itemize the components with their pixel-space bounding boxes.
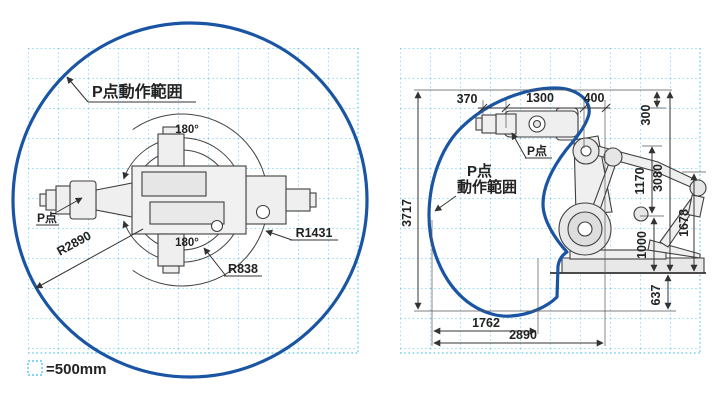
side-view-diagram: 370 1300 400 3717 300 1170 3080 1678 100… <box>400 48 706 353</box>
dim-3717-label: 3717 <box>400 199 414 227</box>
dim-370-label: 370 <box>457 92 478 106</box>
range-label: P点動作範囲 <box>92 82 183 101</box>
figure-svg: P点動作範囲 180° 180° R2890 R838 R1431 P点 <box>0 0 721 404</box>
dim-2890-label: 2890 <box>509 328 537 342</box>
dim-3080-label: 3080 <box>651 164 665 192</box>
dim-400-label: 400 <box>584 91 605 105</box>
dim-1762-label: 1762 <box>472 316 500 330</box>
scale-legend: =500mm <box>28 361 106 378</box>
r1431-label: R1431 <box>296 226 333 240</box>
dim-1000-label: 1000 <box>635 231 649 259</box>
legend-grid-square <box>28 361 42 375</box>
r838-label: R838 <box>228 262 258 276</box>
robot-range-figure: P点動作範囲 180° 180° R2890 R838 R1431 P点 <box>0 0 721 404</box>
dim-1678-label: 1678 <box>677 209 691 237</box>
angle-180-top-label: 180° <box>175 124 199 136</box>
dim-1300-label: 1300 <box>526 91 554 105</box>
legend-unit-label: =500mm <box>46 361 106 378</box>
range-label-right-line2: 動作範囲 <box>457 178 517 196</box>
range-label-right-line1: P点 <box>467 163 492 180</box>
dim-300-label: 300 <box>639 105 653 126</box>
dim-1170-label: 1170 <box>633 167 647 194</box>
top-view-diagram: P点動作範囲 180° 180° R2890 R838 R1431 P点 <box>13 23 367 377</box>
dim-637-label: 637 <box>649 285 663 306</box>
p-point-label-right: P点 <box>527 143 547 158</box>
angle-180-bottom-label: 180° <box>175 237 199 249</box>
p-point-label-left: P点 <box>37 210 57 225</box>
